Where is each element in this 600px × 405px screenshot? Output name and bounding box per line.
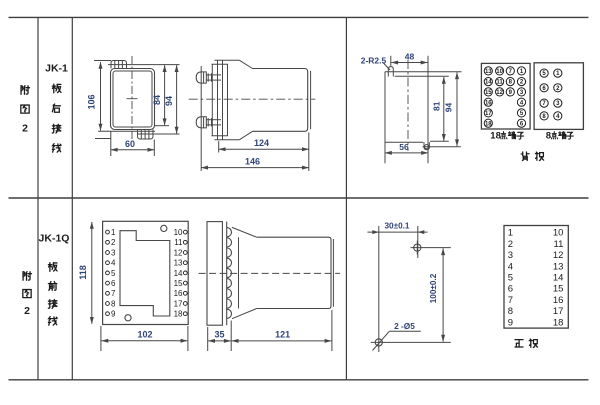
svg-text:14: 14 [485,80,492,86]
svg-text:60: 60 [125,139,135,149]
svg-text:56: 56 [399,142,409,152]
svg-text:118: 118 [78,265,88,280]
svg-text:JK-1Q: JK-1Q [39,233,70,245]
svg-text:2: 2 [22,123,28,135]
svg-text:124: 124 [254,138,269,148]
svg-text:2 -Ø5: 2 -Ø5 [394,321,415,331]
svg-text:15: 15 [553,284,564,295]
svg-text:7: 7 [508,295,513,306]
svg-text:100±0.2: 100±0.2 [429,273,438,303]
svg-text:9: 9 [111,310,116,319]
svg-text:JK-1: JK-1 [45,63,68,75]
svg-text:2: 2 [24,305,30,317]
svg-text:13: 13 [174,259,183,268]
svg-text:7: 7 [111,289,116,298]
svg-text:3: 3 [508,250,513,261]
svg-text:84: 84 [152,95,162,105]
svg-text:14: 14 [553,273,564,284]
svg-text:1: 1 [508,228,513,239]
svg-text:9: 9 [508,317,513,328]
svg-text:35: 35 [214,330,224,340]
svg-text:11: 11 [554,239,564,250]
svg-text:3: 3 [111,248,116,257]
svg-text:15: 15 [174,279,183,288]
svg-text:94: 94 [164,96,174,106]
svg-text:12: 12 [496,90,503,96]
svg-text:2-R2.5: 2-R2.5 [361,55,387,65]
svg-text:5: 5 [111,269,116,278]
svg-text:15: 15 [485,90,492,96]
svg-text:12: 12 [174,248,183,257]
svg-text:12: 12 [553,250,564,261]
svg-text:121: 121 [275,330,290,340]
svg-text:10: 10 [174,228,183,237]
svg-text:16: 16 [485,100,492,106]
svg-text:10: 10 [496,69,503,75]
svg-text:8: 8 [111,299,116,308]
svg-text:48: 48 [405,52,415,62]
svg-text:13: 13 [553,261,564,272]
svg-text:2: 2 [508,239,513,250]
svg-text:18: 18 [485,121,492,127]
svg-text:18: 18 [553,317,564,328]
svg-text:14: 14 [174,269,183,278]
svg-text:13: 13 [485,69,492,75]
svg-text:30±0.1: 30±0.1 [385,221,410,230]
svg-text:17: 17 [553,306,564,317]
svg-text:8: 8 [546,131,551,142]
svg-text:102: 102 [137,330,152,340]
svg-text:11: 11 [174,238,183,247]
svg-text:146: 146 [245,156,260,166]
svg-text:16: 16 [553,295,564,306]
svg-text:4: 4 [508,261,513,272]
svg-text:2: 2 [111,238,116,247]
svg-text:6: 6 [111,279,116,288]
svg-text:94: 94 [444,103,454,113]
svg-text:8: 8 [508,306,513,317]
svg-text:17: 17 [174,299,183,308]
svg-text:106: 106 [87,94,97,109]
svg-text:17: 17 [485,111,492,117]
svg-text:6: 6 [508,284,513,295]
svg-text:1: 1 [111,228,116,237]
svg-text:11: 11 [496,80,503,86]
svg-text:4: 4 [111,259,116,268]
svg-text:18: 18 [174,310,183,319]
svg-text:10: 10 [553,228,564,239]
svg-text:16: 16 [174,289,183,298]
svg-text:81: 81 [431,101,441,111]
svg-text:18: 18 [490,131,501,142]
svg-text:5: 5 [508,273,513,284]
